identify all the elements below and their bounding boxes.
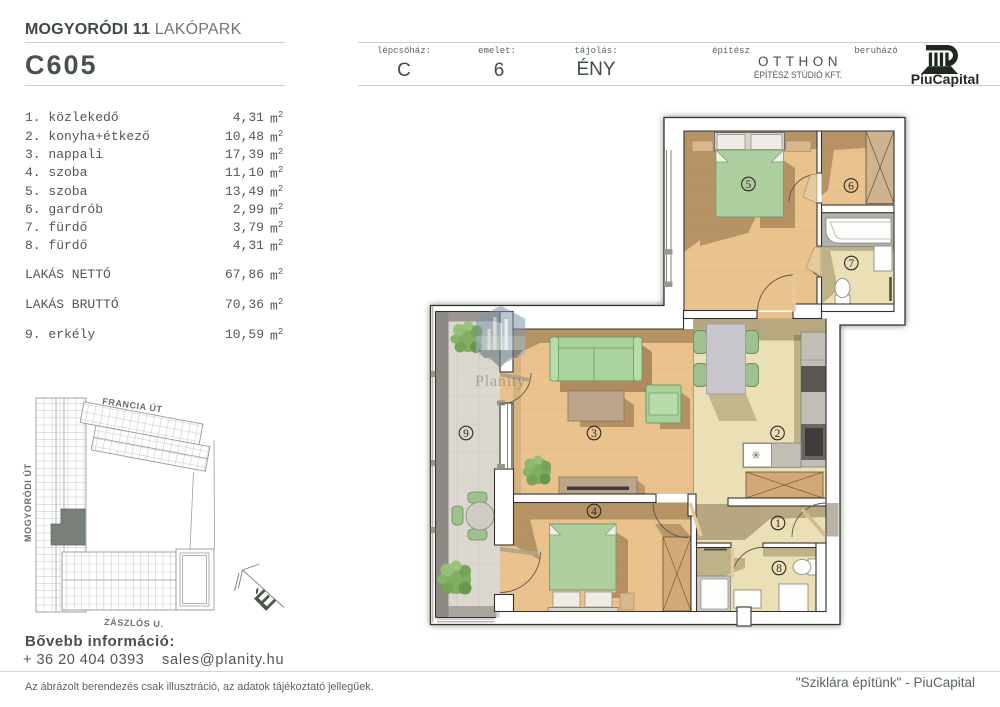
svg-text:6: 6 <box>848 181 854 193</box>
svg-text:8: 8 <box>776 563 782 575</box>
svg-text:MOGYORÓDI ÚT: MOGYORÓDI ÚT <box>22 463 33 542</box>
svg-text:3: 3 <box>591 428 597 440</box>
svg-text:2: 2 <box>775 428 781 440</box>
svg-text:9: 9 <box>463 428 469 440</box>
svg-text:4: 4 <box>591 506 597 518</box>
svg-text:ZÁSZLÓS U.: ZÁSZLÓS U. <box>104 616 164 629</box>
svg-text:7: 7 <box>848 258 854 270</box>
svg-text:É: É <box>249 584 281 616</box>
svg-text:1: 1 <box>775 518 781 530</box>
svg-text:Planity: Planity <box>475 373 526 390</box>
svg-text:5: 5 <box>746 179 752 191</box>
